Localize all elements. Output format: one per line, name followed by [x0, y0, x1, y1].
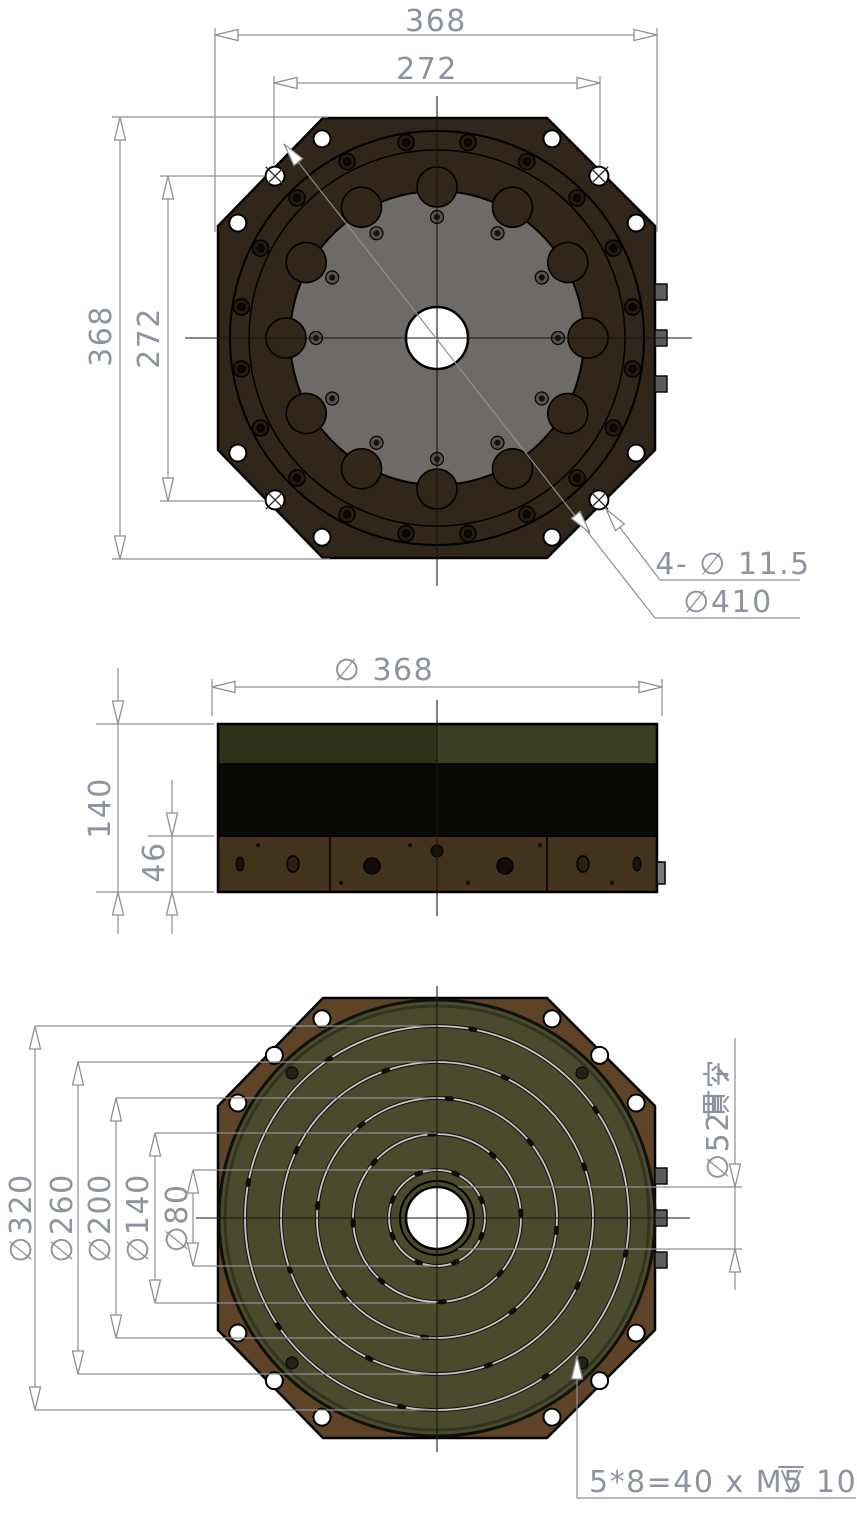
arrowhead-icon	[639, 682, 662, 693]
arrowhead-icon	[113, 701, 124, 724]
arrowhead-icon	[167, 813, 178, 836]
arrowhead-icon	[215, 30, 238, 41]
dim-height-inner: 272	[132, 307, 167, 369]
cjk-char-chuan	[704, 1063, 728, 1085]
arrowhead-icon	[113, 892, 124, 915]
note-thread: 5*8=40 x M5	[589, 1465, 804, 1500]
dim-ring-260: ∅260	[45, 1173, 80, 1262]
arrowhead-icon	[163, 176, 174, 199]
arrowhead-icon	[212, 682, 235, 693]
arrowhead-icon	[111, 1315, 122, 1338]
engineering-drawing-page: 368 272 368 272 4- ∅ 11.5 ∅410 ∅ 368 140…	[0, 0, 857, 1510]
dim-width-inner: 272	[396, 52, 458, 87]
arrowhead-icon	[73, 1351, 84, 1374]
arrowhead-icon	[167, 892, 178, 915]
connector-tab	[655, 284, 667, 300]
dim-width-outer: 368	[405, 4, 467, 39]
arrowhead-icon	[115, 117, 126, 140]
arrowhead-icon	[115, 536, 126, 559]
drawing-canvas: 368 272 368 272 4- ∅ 11.5 ∅410 ∅ 368 140…	[0, 0, 857, 1510]
dim-center-hole-group: ∅52	[701, 1063, 736, 1180]
connector-tab	[655, 1252, 667, 1268]
dim-base-height: 46	[137, 841, 172, 882]
bottom-view	[196, 986, 690, 1452]
arrowhead-icon	[30, 1387, 41, 1410]
arrowhead-icon	[577, 78, 600, 89]
label-bolt-circle: ∅410	[683, 585, 772, 620]
arrowhead-icon	[730, 1249, 741, 1272]
arrowhead-icon	[634, 30, 657, 41]
note-depth: 10	[816, 1465, 857, 1500]
arrowhead-icon	[30, 1026, 41, 1049]
cjk-char-guan	[704, 1092, 728, 1116]
dim-height-outer: 368	[84, 305, 119, 367]
dim-ring-140: ∅140	[121, 1173, 156, 1262]
arrowhead-icon	[150, 1133, 161, 1156]
dim-ring-200: ∅200	[83, 1173, 118, 1262]
connector-tab	[655, 1168, 667, 1184]
label-corner-holes: 4- ∅ 11.5	[655, 547, 810, 582]
side-view	[218, 700, 665, 916]
side-connector-tab	[657, 862, 665, 884]
dim-diameter: ∅ 368	[334, 653, 434, 688]
dim-ring-320: ∅320	[4, 1173, 39, 1262]
arrowhead-icon	[111, 1098, 122, 1121]
arrowhead-icon	[274, 78, 297, 89]
dim-total-height: 140	[83, 777, 118, 839]
arrowhead-icon	[163, 478, 174, 501]
side-green-band-right	[437, 724, 657, 764]
arrowhead-icon	[73, 1062, 84, 1085]
dim-center-hole: ∅52	[701, 1111, 736, 1180]
side-green-band-left	[218, 724, 437, 764]
arrowhead-icon	[602, 506, 625, 531]
dim-ring-80: ∅80	[160, 1184, 195, 1253]
connector-tab	[655, 376, 667, 392]
arrowhead-icon	[150, 1280, 161, 1303]
